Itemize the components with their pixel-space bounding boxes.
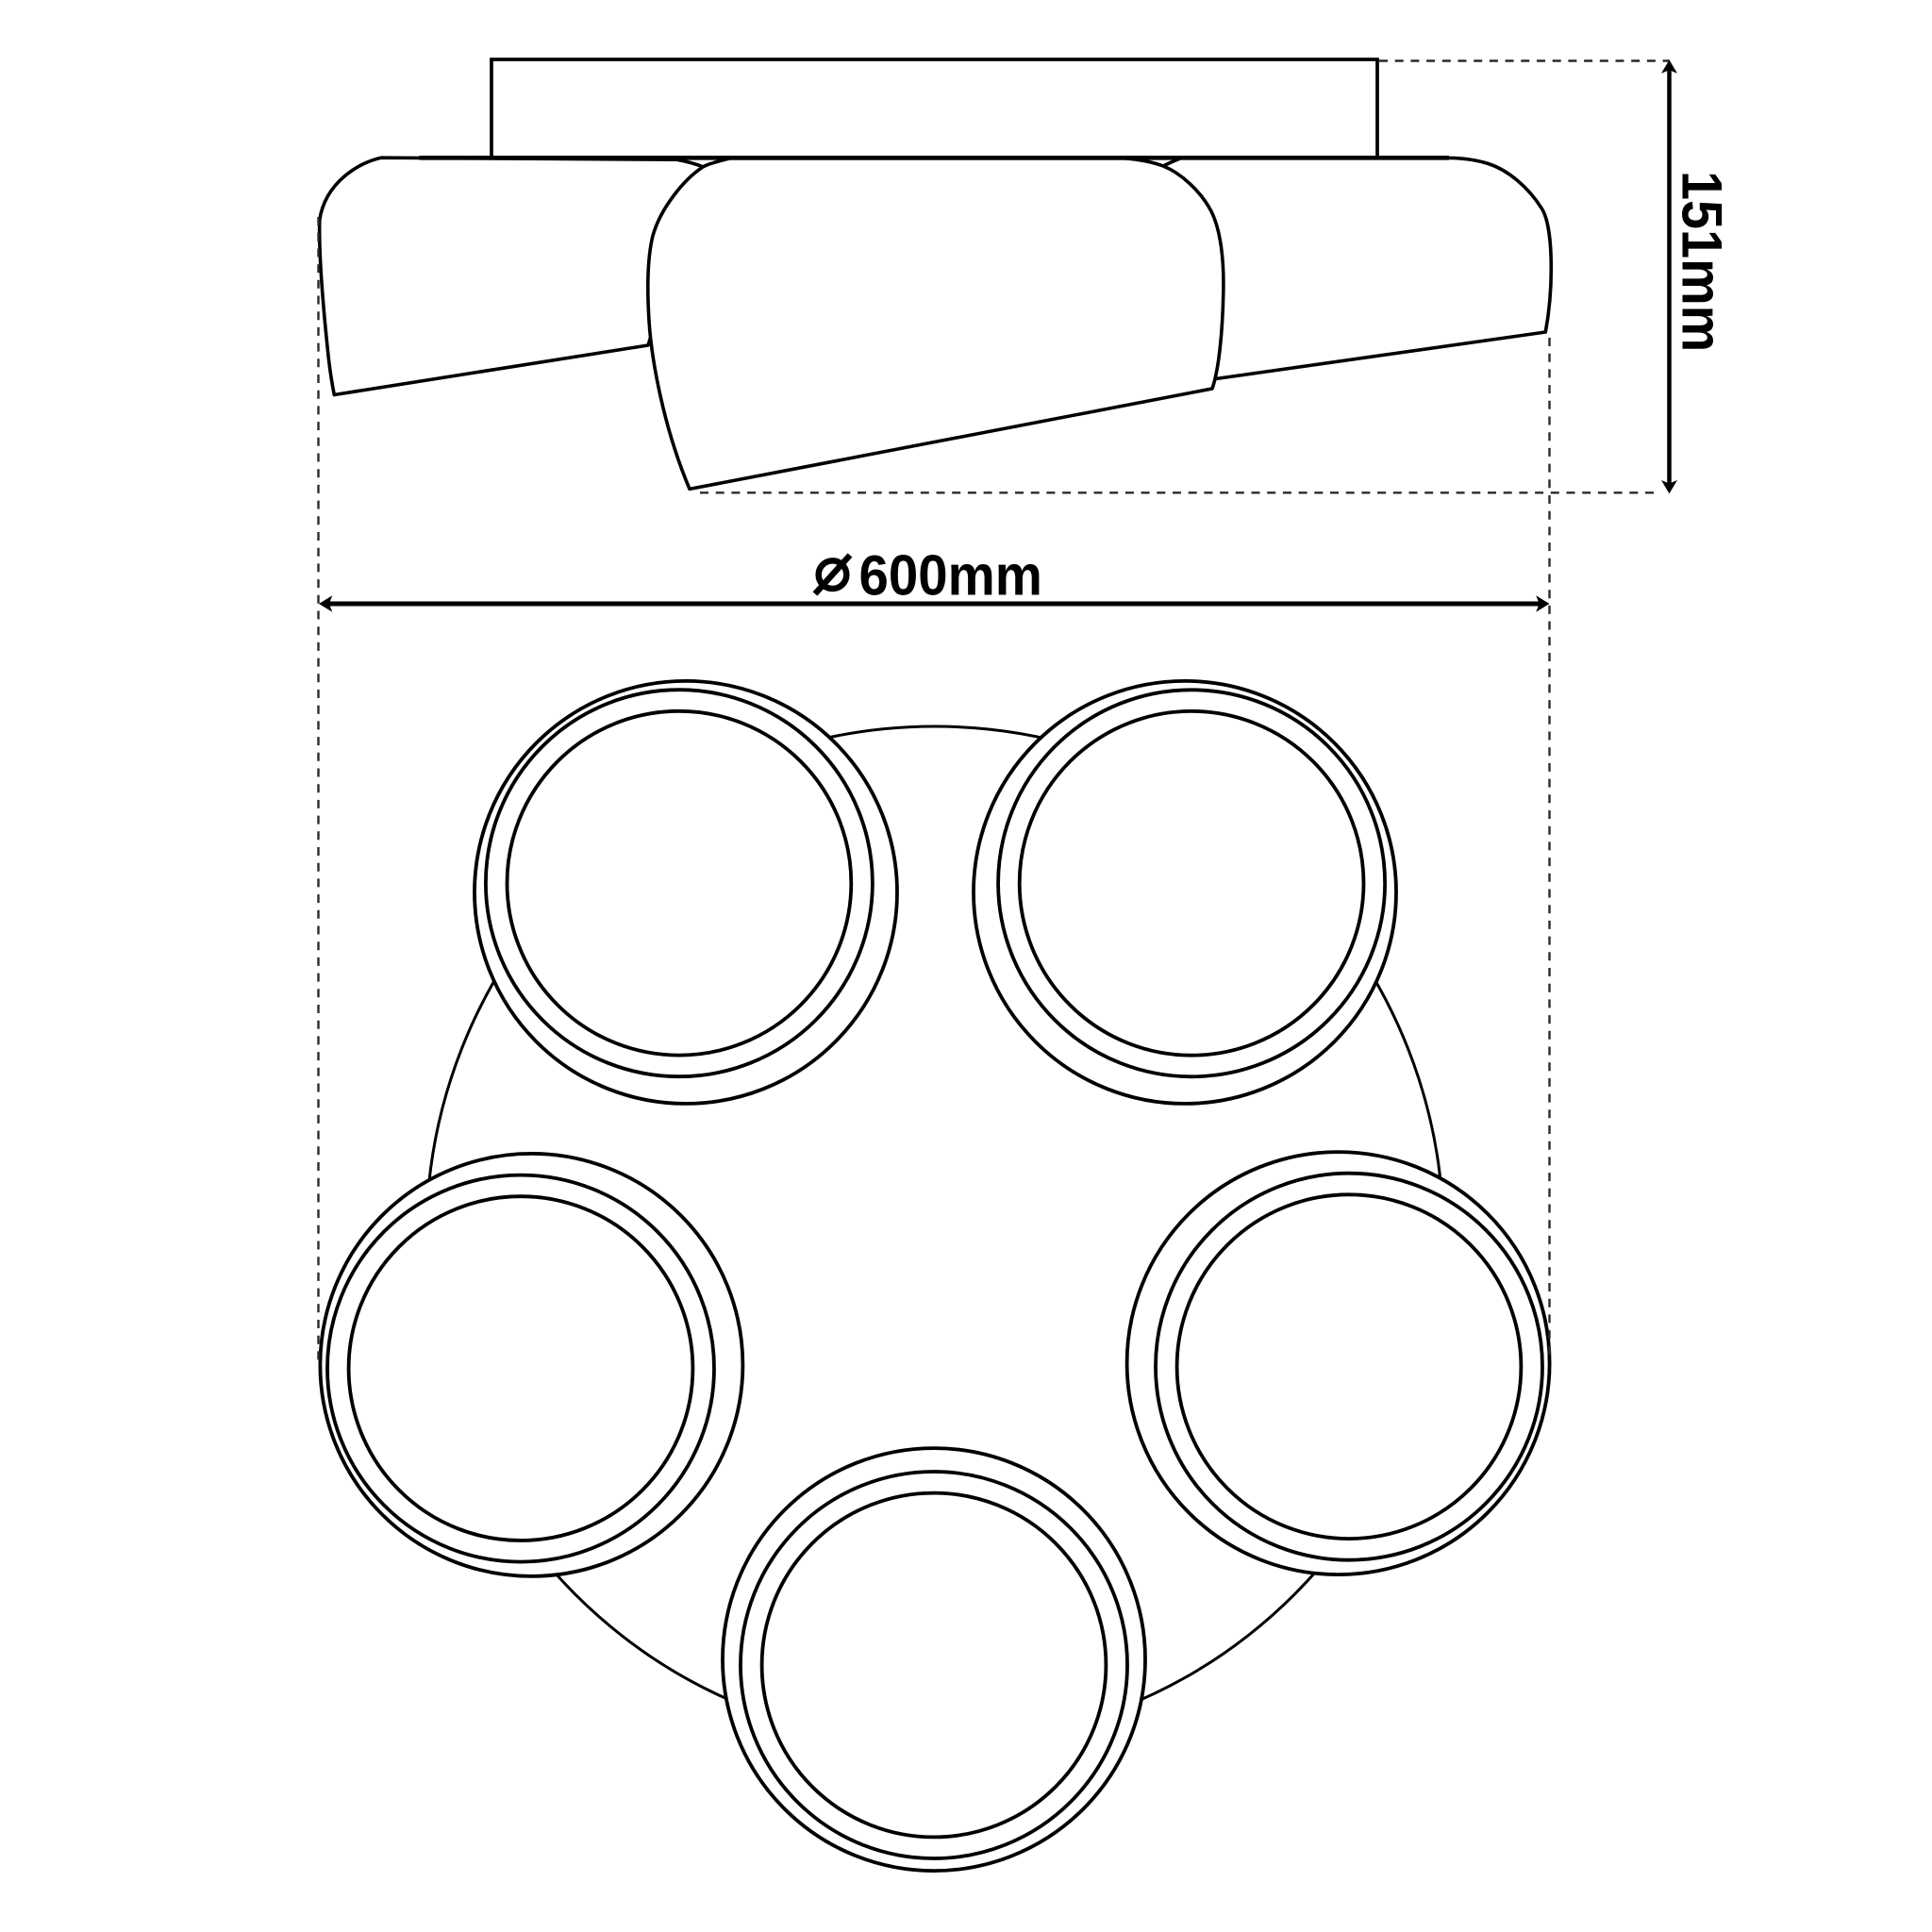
svg-text:151mm: 151mm [1670, 171, 1732, 352]
svg-text:600mm: 600mm [859, 544, 1042, 608]
